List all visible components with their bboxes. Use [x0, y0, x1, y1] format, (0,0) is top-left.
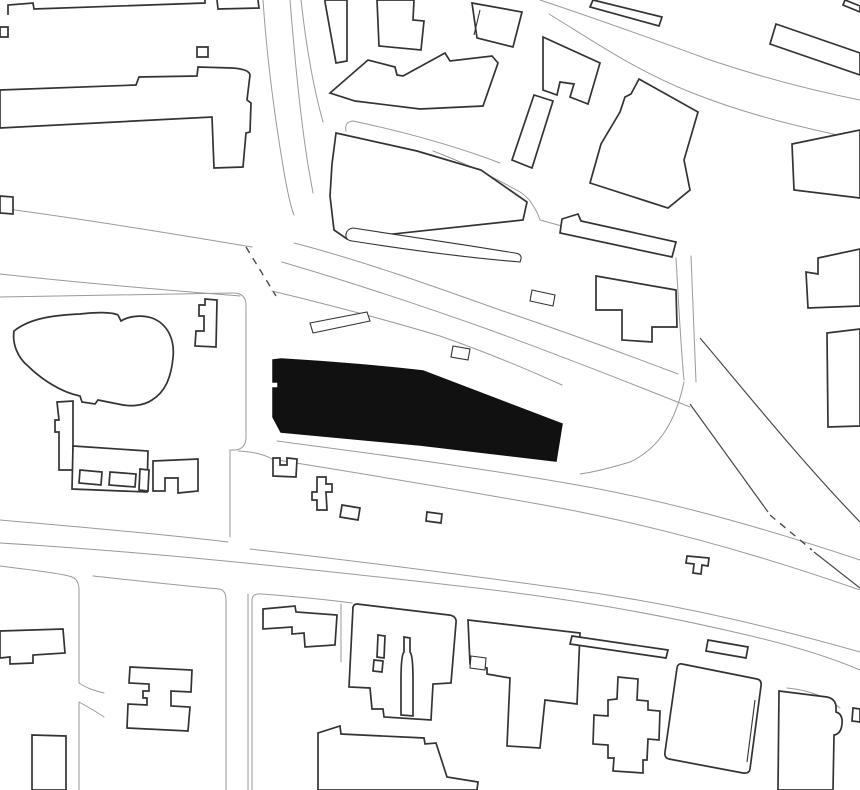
bldg-h-shape — [127, 667, 192, 731]
bldg-rightedge-tiny — [852, 708, 860, 722]
bldg-belowsite-small-b — [426, 512, 442, 523]
block-midleft-bottom-edge — [0, 520, 228, 542]
strip-lower-rounded — [346, 228, 521, 262]
bldg-bump-road-b — [451, 346, 470, 360]
dashed-boundary-junction — [246, 247, 276, 296]
road-west-street-south-edge — [0, 274, 240, 296]
island-parallelogram — [310, 312, 370, 333]
bldg-midright-stepped — [596, 276, 677, 342]
bldg-cluster-seven-lower — [512, 95, 553, 168]
bldg-midleft-f-shape — [195, 299, 217, 347]
bldg-bottomcenter-jagged — [468, 620, 580, 748]
bldg-cluster-seven-upper — [543, 37, 600, 104]
driveway-curve-lower — [79, 702, 104, 717]
bldg-topmid-stepped — [377, 0, 424, 50]
bldg-topleft-partial-b — [217, 0, 259, 9]
street-below-site-block-edge — [238, 451, 860, 590]
bldg-rightedge-a — [792, 130, 860, 198]
bldg-topmid-slanted — [472, 3, 522, 47]
bldg-t-shape-small — [686, 556, 709, 574]
road-top-fork-line — [301, 0, 323, 122]
road-northeast-vertical-east — [691, 256, 696, 382]
dashed-boundary-southeast — [770, 515, 812, 550]
bldg-bottomcenter-innersq — [470, 656, 486, 670]
bldg-midleft-small-2 — [109, 472, 136, 487]
road-slip-curve — [580, 382, 684, 474]
bldg-midleft-rightpart — [153, 459, 198, 493]
bldg-small-square — [197, 47, 208, 57]
site-plan-canvas — [0, 0, 860, 790]
road-top-vertical-east-edge — [290, 0, 313, 193]
driveway-curve-upper — [79, 683, 104, 693]
bldg-bottom-bigslab — [318, 726, 478, 790]
bldg-rightedge-c — [827, 329, 860, 427]
road-bottomleft-block-west — [0, 566, 79, 683]
rail-diagonal-short-a — [690, 404, 768, 512]
bldg-bump-road-a — [530, 290, 555, 306]
courtyard-hook — [373, 660, 383, 672]
bldg-leftedge-partial-b — [0, 27, 8, 37]
bldg-cruciform — [593, 677, 660, 773]
bldg-topleft-partial-a — [8, 0, 205, 15]
bldg-midleft-small-1 — [79, 470, 102, 485]
site-highlight-layer — [273, 359, 562, 461]
strip-small-bottomright — [706, 640, 748, 658]
road-west-street-north-edge — [0, 208, 252, 247]
bldg-topright-corner — [843, 0, 860, 12]
bldg-bottomcenter-notched — [263, 606, 337, 647]
bldg-blob-organic — [14, 313, 174, 406]
bldg-belowsite-small-a — [340, 505, 360, 520]
bldg-midright-big — [590, 79, 698, 208]
site-plan-map — [0, 0, 860, 790]
bldg-midleft-small-3 — [139, 469, 149, 491]
bldg-bottomleft-rect — [32, 735, 66, 790]
highlighted-site-building — [273, 359, 562, 461]
bldg-wedge-block — [330, 133, 527, 239]
bldg-bottomleft-notched — [0, 629, 65, 664]
bldg-topmid-jagged — [330, 53, 498, 109]
bldg-topright-longslab — [770, 24, 860, 75]
bldg-midleft-leftwing — [55, 401, 73, 470]
bldg-belowsite-cross — [312, 477, 332, 510]
bldg-rounded-large — [665, 664, 761, 773]
bldg-midright-slab — [560, 214, 676, 257]
strip-thin-bottomright — [570, 636, 668, 658]
bldg-tall-right — [778, 691, 842, 790]
bldg-topleft-slab-tower — [0, 67, 251, 168]
road-top-vertical-west-edge — [263, 0, 294, 215]
street-below-site-sidewalk — [277, 441, 860, 560]
bldg-topmid-narrow — [325, 0, 347, 63]
courtyard-slot — [377, 635, 385, 658]
bldg-rightedge-b — [806, 249, 860, 308]
bldg-topright-partial — [590, 0, 662, 26]
bldg-leftedge-partial-a — [0, 196, 13, 214]
